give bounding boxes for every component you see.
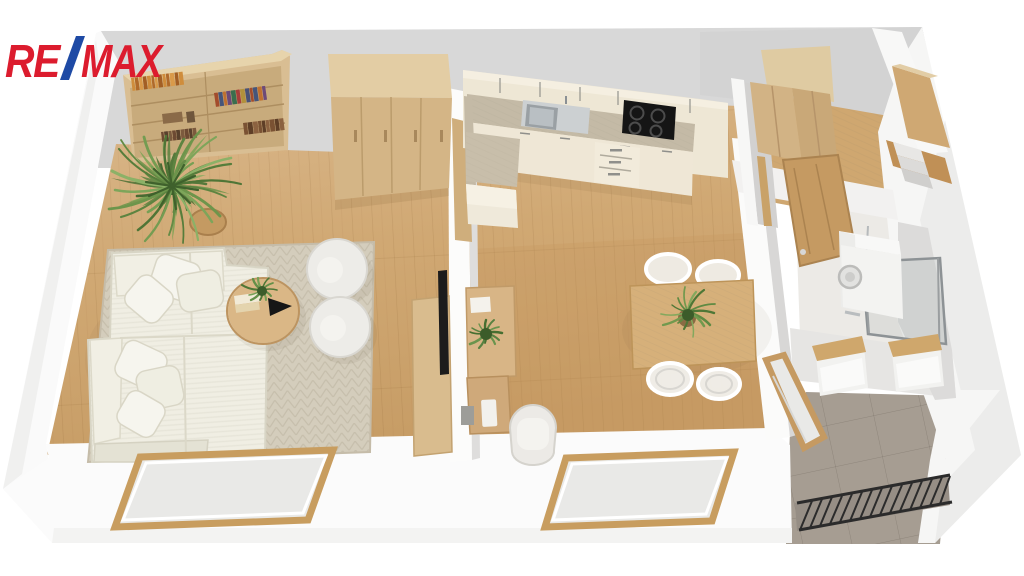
svg-text:RE: RE [5, 35, 61, 87]
svg-text:MAX: MAX [81, 35, 164, 87]
